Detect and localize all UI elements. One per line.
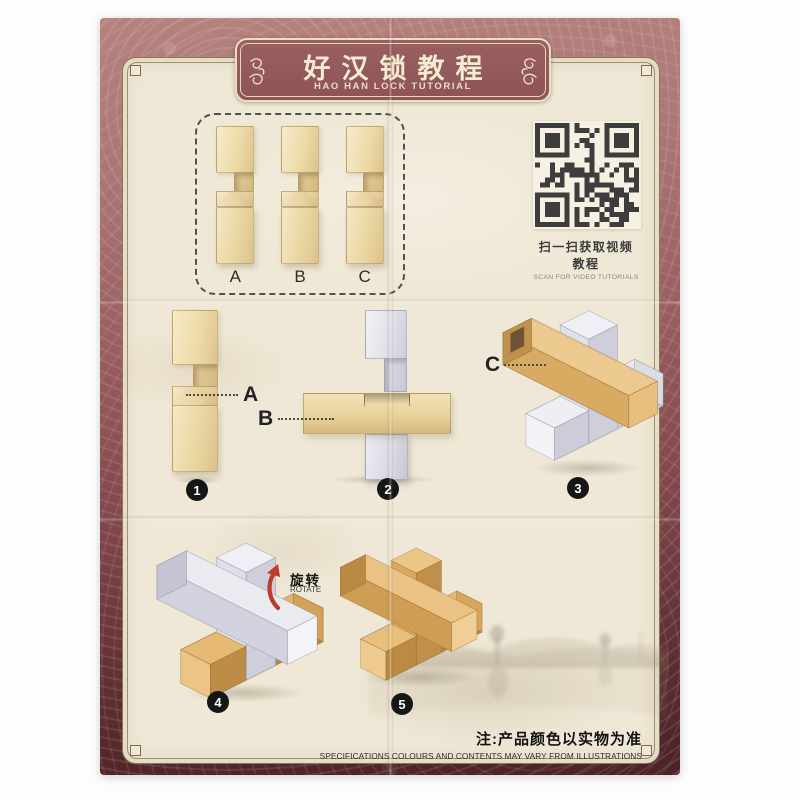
part-c: C bbox=[346, 126, 384, 287]
corner-ornament bbox=[130, 65, 141, 76]
part-b: B bbox=[281, 126, 319, 287]
product-photo: 好汉锁教程 HAO HAN LOCK TUTORIAL 扫一扫获取视频教程 SC… bbox=[0, 0, 800, 800]
footer-note-cn: 注:产品颜色以实物为准 bbox=[260, 728, 642, 749]
step3-badge: 3 bbox=[567, 477, 589, 499]
footer-note: 注:产品颜色以实物为准 SPECIFICATIONS COLOURS AND C… bbox=[260, 728, 642, 761]
corner-ornament bbox=[130, 745, 141, 756]
rotate-arrow-icon bbox=[262, 564, 288, 612]
title-banner: 好汉锁教程 HAO HAN LOCK TUTORIAL bbox=[235, 38, 551, 102]
step5-badge: 5 bbox=[391, 693, 413, 715]
corner-ornament bbox=[641, 745, 652, 756]
puzzle-piece-c bbox=[346, 126, 384, 264]
rotate-label-en: ROTATE bbox=[290, 585, 321, 594]
part-label: C bbox=[359, 267, 371, 287]
scroll-ornament-icon bbox=[245, 53, 271, 87]
step1-badge: 1 bbox=[186, 479, 208, 501]
puzzle-piece-a bbox=[216, 126, 254, 264]
puzzle-piece-b bbox=[281, 126, 319, 264]
step2-white-piece-top bbox=[365, 310, 407, 392]
corner-ornament bbox=[641, 65, 652, 76]
leader-dots bbox=[186, 394, 238, 396]
qr-code bbox=[533, 121, 641, 229]
part-label: B bbox=[294, 267, 305, 287]
leader-dots bbox=[278, 418, 334, 420]
qr-caption-cn: 扫一扫获取视频教程 bbox=[533, 238, 639, 272]
parts-box: A B C bbox=[195, 113, 405, 295]
tutorial-leaflet: 好汉锁教程 HAO HAN LOCK TUTORIAL 扫一扫获取视频教程 SC… bbox=[100, 18, 680, 775]
scroll-ornament-icon bbox=[515, 53, 541, 87]
step2-badge: 2 bbox=[377, 478, 399, 500]
step3-assembly bbox=[496, 304, 672, 468]
part-a: A bbox=[216, 126, 254, 287]
part-label: A bbox=[230, 267, 241, 287]
step4-assembly bbox=[150, 536, 332, 706]
step4-badge: 4 bbox=[207, 691, 229, 713]
step2-white-piece-bottom bbox=[365, 434, 408, 480]
callout-a: A bbox=[186, 384, 258, 405]
page-title: 好汉锁教程 bbox=[237, 47, 549, 86]
qr-caption-en: SCAN FOR VIDEO TUTORIALS bbox=[533, 274, 639, 281]
callout-c: C bbox=[485, 354, 546, 375]
leader-dots bbox=[504, 364, 546, 366]
page-subtitle: HAO HAN LOCK TUTORIAL bbox=[237, 81, 549, 92]
footer-note-en: SPECIFICATIONS COLOURS AND CONTENTS MAY … bbox=[260, 751, 642, 761]
callout-b: B bbox=[258, 408, 334, 429]
qr-block: 扫一扫获取视频教程 SCAN FOR VIDEO TUTORIALS bbox=[533, 121, 639, 281]
notch-slot bbox=[364, 394, 410, 406]
step5-assembly bbox=[334, 542, 490, 687]
